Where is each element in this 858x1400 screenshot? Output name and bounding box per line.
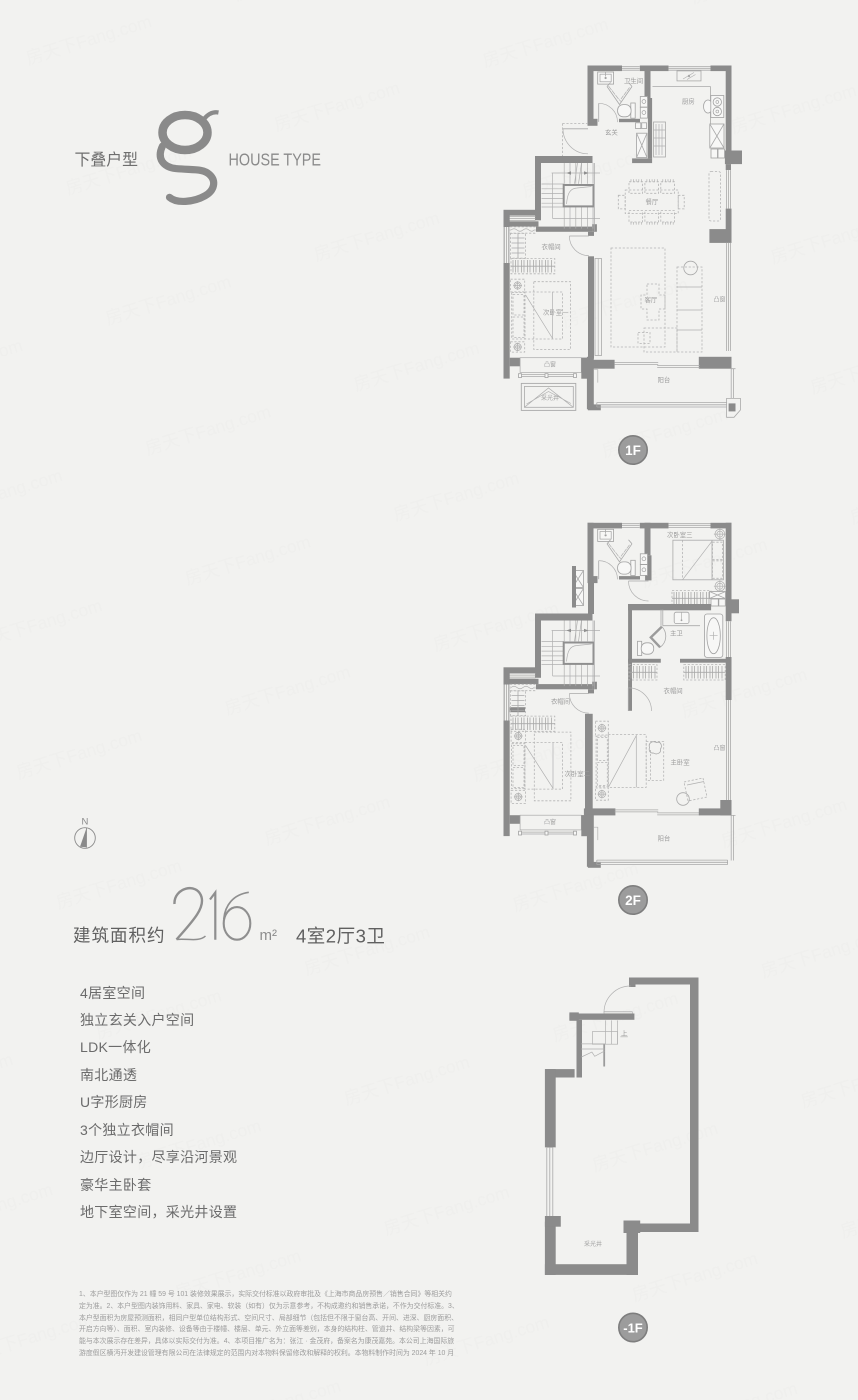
svg-text:玄关: 玄关 (605, 128, 618, 137)
svg-text:采光井: 采光井 (584, 1240, 602, 1248)
svg-text:主卫: 主卫 (670, 629, 683, 638)
svg-text:凸窗: 凸窗 (714, 744, 726, 752)
svg-text:衣帽间: 衣帽间 (664, 686, 683, 695)
svg-text:HOUSE TYPE: HOUSE TYPE (229, 150, 322, 170)
svg-text:次卧室二: 次卧室二 (565, 769, 591, 778)
svg-text:4室2厅3卫: 4室2厅3卫 (296, 926, 385, 947)
svg-text:厨房: 厨房 (682, 97, 695, 106)
svg-text:-1F: -1F (623, 1321, 643, 1336)
svg-text:凸窗: 凸窗 (544, 818, 556, 826)
svg-text:阳台: 阳台 (658, 375, 671, 384)
svg-text:采光井: 采光井 (541, 394, 559, 402)
svg-text:1F: 1F (625, 443, 641, 458)
svg-text:阳台: 阳台 (658, 834, 671, 843)
svg-text:衣帽间: 衣帽间 (542, 242, 561, 251)
svg-text:建筑面积约: 建筑面积约 (73, 926, 166, 946)
svg-text:主卧室: 主卧室 (671, 758, 691, 767)
svg-text:卫生间: 卫生间 (624, 76, 643, 85)
svg-text:2F: 2F (625, 893, 641, 908)
svg-text:凸窗: 凸窗 (714, 296, 726, 304)
svg-text:餐厅: 餐厅 (646, 197, 659, 206)
svg-text:客厅: 客厅 (645, 295, 658, 304)
svg-text:衣帽间: 衣帽间 (551, 697, 570, 706)
svg-text:上: 上 (621, 1029, 628, 1038)
svg-text:下叠户型: 下叠户型 (75, 151, 139, 169)
svg-text:N: N (82, 817, 89, 828)
svg-text:m²: m² (260, 927, 278, 944)
svg-text:凸窗: 凸窗 (544, 361, 556, 369)
svg-text:次卧室一: 次卧室一 (543, 308, 569, 317)
svg-text:次卧室三: 次卧室三 (667, 530, 693, 539)
